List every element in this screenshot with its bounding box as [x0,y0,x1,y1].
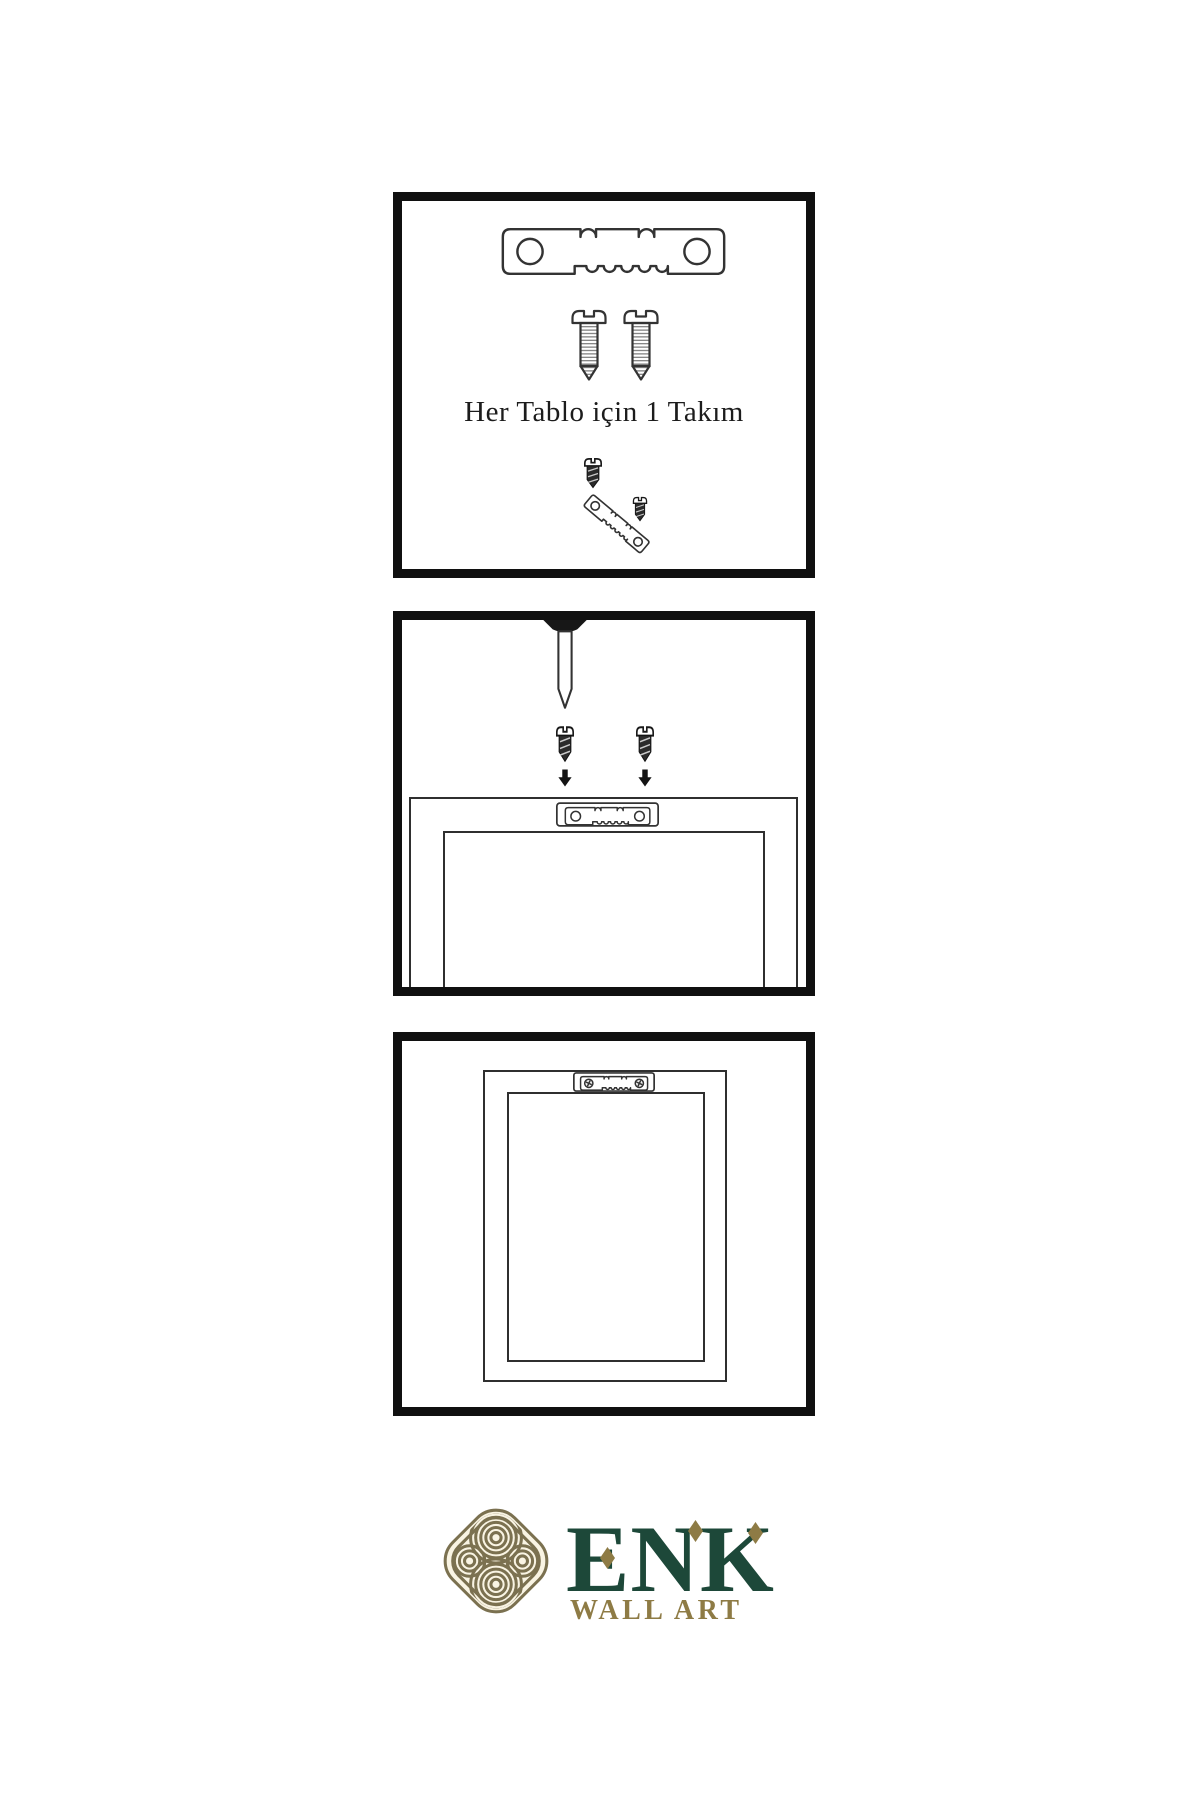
sawtooth-hanger-plate-with-screws-icon [573,1072,655,1092]
dark-screw-icon [555,725,575,763]
panel-mount-hanger [393,611,815,996]
brand-tagline: WALL ART [570,1597,743,1625]
sawtooth-hanger-icon [497,223,730,280]
celtic-knot-icon [435,1497,557,1625]
dark-screw-icon [632,496,648,522]
down-arrow-icon [638,768,652,788]
sawtooth-hanger-plate-icon [555,802,660,827]
screw-pair-icon [571,308,659,382]
instruction-sheet: { "page": { "background": "#ffffff" }, "… [0,0,1200,1800]
brand-wordmark: ENK [566,1512,775,1607]
frame-back-inner [443,831,765,987]
panel-hanging-frame [393,1032,815,1416]
down-arrow-icon [558,768,572,788]
dark-screw-icon [635,725,655,763]
frame-back-inner [507,1092,705,1362]
panel-hardware-kit: Her Tablo için 1 Takım [393,192,815,578]
dark-screw-icon [583,457,603,489]
kit-caption: Her Tablo için 1 Takım [402,396,806,429]
wall-nail-icon [541,620,589,720]
